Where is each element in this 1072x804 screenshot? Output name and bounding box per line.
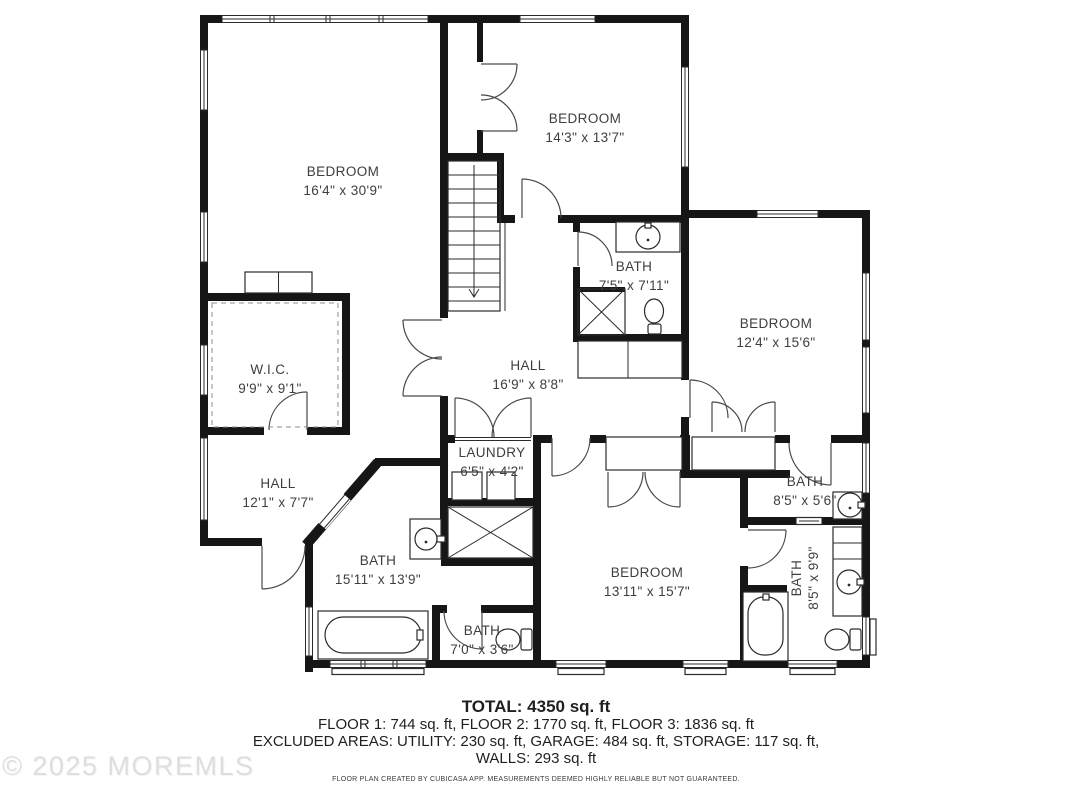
room-dims: 12'1" x 7'7" — [242, 493, 313, 512]
stairs — [448, 161, 505, 311]
room-dims: 7'0" x 3'6" — [450, 640, 513, 659]
room-label-bath-5: BATH 7'0" x 3'6" — [450, 621, 513, 659]
room-name: BATH — [450, 621, 513, 640]
room-name: BEDROOM — [545, 109, 624, 128]
room-dims: 6'5" x 4'2" — [458, 462, 525, 481]
room-name: LAUNDRY — [458, 443, 525, 462]
total-area: TOTAL: 4350 sq. ft — [0, 697, 1072, 716]
room-name: BATH — [788, 546, 805, 609]
room-label-bedroom-3: BEDROOM 12'4" x 15'6" — [736, 314, 815, 352]
room-dims: 16'4" x 30'9" — [303, 181, 382, 200]
room-dims: 12'4" x 15'6" — [736, 333, 815, 352]
room-label-bath-1: BATH 7'5" x 7'11" — [599, 257, 669, 295]
room-label-hall-1: HALL 16'9" x 8'8" — [492, 356, 563, 394]
room-label-wic: W.I.C. 9'9" x 9'1" — [238, 360, 301, 398]
room-dims: 9'9" x 9'1" — [238, 379, 301, 398]
room-dims: 14'3" x 13'7" — [545, 128, 624, 147]
room-name: BATH — [599, 257, 669, 276]
room-dims: 13'11" x 15'7" — [604, 582, 690, 601]
watermark: © 2025 MOREMLS — [2, 751, 254, 782]
room-label-bedroom-1: BEDROOM 16'4" x 30'9" — [303, 162, 382, 200]
room-name: BEDROOM — [604, 563, 690, 582]
room-label-hall-2: HALL 12'1" x 7'7" — [242, 474, 313, 512]
diagonal-wall — [306, 462, 378, 545]
room-label-laundry: LAUNDRY 6'5" x 4'2" — [458, 443, 525, 481]
room-name: HALL — [492, 356, 563, 375]
room-name: BEDROOM — [736, 314, 815, 333]
room-name: BATH — [773, 472, 836, 491]
room-name: HALL — [242, 474, 313, 493]
room-name: BATH — [335, 551, 421, 570]
floor-plan-drawing — [0, 0, 1072, 804]
room-dims: 16'9" x 8'8" — [492, 375, 563, 394]
room-label-bath-3: BATH 8'5" x 5'6" — [773, 472, 836, 510]
room-label-bedroom-4: BEDROOM 13'11" x 15'7" — [604, 563, 690, 601]
room-dims: 7'5" x 7'11" — [599, 276, 669, 295]
room-dims: 8'5" x 9'9" — [805, 546, 822, 609]
room-dims: 15'11" x 13'9" — [335, 570, 421, 589]
room-label-bath-4: BATH 8'5" x 9'9" — [788, 546, 822, 609]
room-name: W.I.C. — [238, 360, 301, 379]
room-name: BEDROOM — [303, 162, 382, 181]
excluded-areas: EXCLUDED AREAS: UTILITY: 230 sq. ft, GAR… — [0, 733, 1072, 750]
floor-areas: FLOOR 1: 744 sq. ft, FLOOR 2: 1770 sq. f… — [0, 716, 1072, 733]
room-label-bath-2: BATH 15'11" x 13'9" — [335, 551, 421, 589]
floor-plan-page: BEDROOM 16'4" x 30'9" BEDROOM 14'3" x 13… — [0, 0, 1072, 804]
room-label-bedroom-2: BEDROOM 14'3" x 13'7" — [545, 109, 624, 147]
room-dims: 8'5" x 5'6" — [773, 491, 836, 510]
